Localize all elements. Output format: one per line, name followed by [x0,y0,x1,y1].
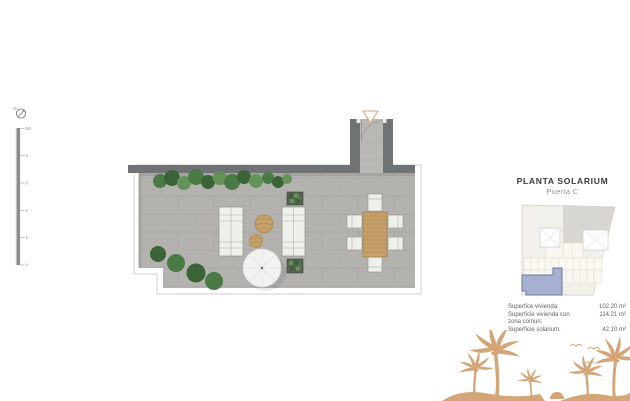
area-value: 114.21 m² [599,312,626,320]
scale-label: 4 [26,153,29,158]
area-label: zona comun: [508,319,542,327]
area-line: Superficie vivienda con 114.21 m² [508,312,626,320]
island-ground [560,393,630,401]
palm-trees-illustration [440,330,630,401]
round-table-large [255,215,273,233]
scale-label: 5m [26,126,32,131]
stair-access-structure [350,119,393,173]
dining-table [363,212,387,257]
sun-icon [550,392,564,399]
scale-label: 0 [26,263,29,268]
site-key-plan [516,202,620,300]
plan-subtitle: Puerta C [500,187,625,196]
north-compass-icon: N [14,106,26,118]
solarium-floor-plan [124,106,424,298]
scale-bar: 5m 4 3 2 1 0 [16,126,32,268]
area-label: Superficie vivienda con [508,312,570,320]
sun-lounger-left [219,207,243,256]
scalebar-and-compass: N 5m 4 3 2 1 0 [8,104,48,274]
planter-box-top [287,192,303,205]
sun-lounger-center [282,207,305,256]
area-line: Superfice vivienda: 102.20 m² [508,304,626,312]
scale-label: 2 [26,208,29,213]
area-label: Superfice vivienda: [508,304,559,312]
compass-north-label: N [14,106,17,111]
island-ground [442,392,545,401]
plan-title: PLANTA SOLARIUM [500,176,625,186]
planter-box-bottom [287,259,303,273]
floorplan-page: N 5m 4 3 2 1 0 [0,0,630,401]
scale-label: 1 [26,235,29,240]
round-table-small [250,235,263,248]
area-line: zona comun: [508,319,626,327]
area-value: 102.20 m² [599,304,626,312]
birds-icon [570,345,600,364]
scale-label: 3 [26,181,29,186]
